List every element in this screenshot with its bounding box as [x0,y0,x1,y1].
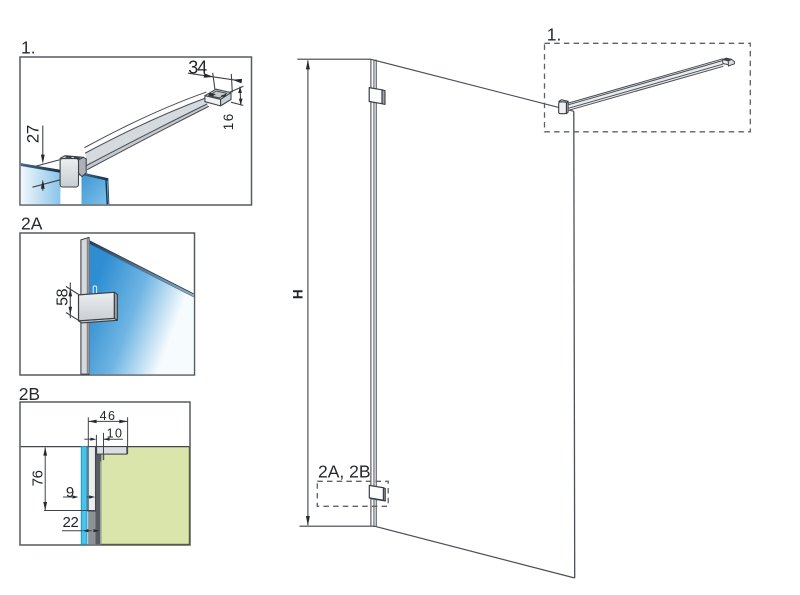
svg-text:27: 27 [24,125,43,143]
svg-text:22: 22 [63,514,79,531]
svg-text:76: 76 [29,470,46,486]
svg-text:16: 16 [221,112,236,130]
svg-text:1.: 1. [547,25,562,45]
svg-text:2A: 2A [21,214,43,234]
svg-text:34: 34 [188,57,207,77]
svg-text:58: 58 [54,288,71,305]
svg-text:1.: 1. [21,38,36,58]
svg-text:9: 9 [66,484,74,501]
svg-text:46: 46 [100,409,117,423]
svg-text:2B: 2B [19,384,40,404]
svg-text:2A, 2B: 2A, 2B [318,462,371,482]
svg-text:10: 10 [107,427,124,441]
svg-text:H: H [290,289,305,299]
